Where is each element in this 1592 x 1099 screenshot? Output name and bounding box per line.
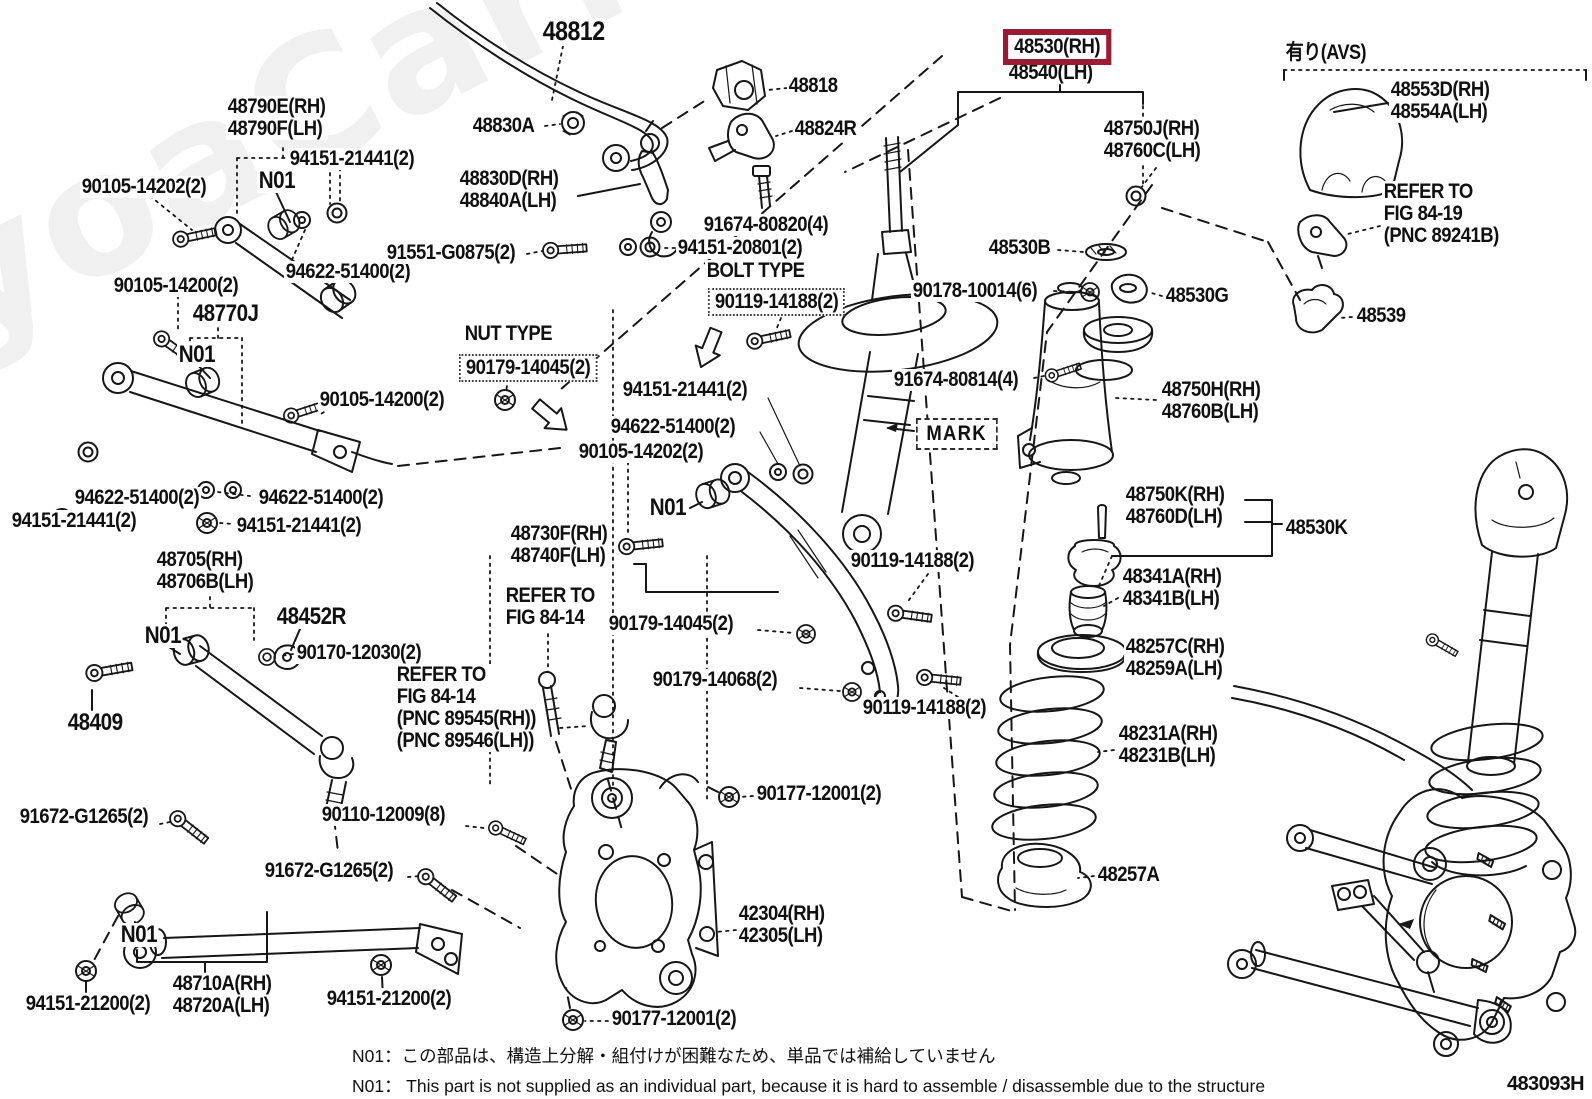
footnote-en: N01： This part is not supplied as an ind… xyxy=(350,1076,1267,1096)
part-48540-lh: 48540(LH) xyxy=(1007,62,1094,84)
part-48553d-48554a: 48553D(RH) 48554A(LH) xyxy=(1389,79,1491,123)
note-n01-a: N01 xyxy=(257,169,297,193)
part-48790e-48790f: 48790E(RH) 48790F(LH) xyxy=(226,96,327,140)
part-48530-rh-selected[interactable]: 48530(RH) xyxy=(1003,29,1111,65)
part-48730f-48740f: 48730F(RH) 48740F(LH) xyxy=(509,523,609,567)
note-n01-c: N01 xyxy=(143,624,183,648)
part-48452r: 48452R xyxy=(275,605,348,629)
part-94151-21441-mid: 94151-21441(2) xyxy=(621,379,749,401)
part-90177-12001-a: 90177-12001(2) xyxy=(755,783,883,805)
part-91674-80820: 91674-80820(4) xyxy=(702,214,830,236)
part-48530g: 48530G xyxy=(1164,285,1230,307)
part-90179-14045-boxed: 90179-14045(2) xyxy=(459,354,597,382)
part-48257a: 48257A xyxy=(1096,864,1161,886)
part-90179-14045-b: 90179-14045(2) xyxy=(607,613,735,635)
part-94151-21441-c: 94151-21441(2) xyxy=(235,515,363,537)
part-94151-21200-a: 94151-21200(2) xyxy=(24,993,152,1015)
part-90119-14188-b: 90119-14188(2) xyxy=(861,697,988,719)
part-90170-12030: 90170-12030(2) xyxy=(295,642,423,664)
note-n01-b: N01 xyxy=(177,343,217,367)
part-48770j: 48770J xyxy=(191,302,260,326)
footnote-jp: N01：この部品は、構造上分解・組付けが困難なため、単品では補給していません xyxy=(350,1046,998,1066)
caption-refer-fig-84-14-b: REFER TO FIG 84-14 (PNC 89545(RH)) (PNC … xyxy=(395,664,538,752)
part-90105-14202-mid: 90105-14202(2) xyxy=(577,441,705,463)
caption-refer-fig-84-19: REFER TO FIG 84-19 (PNC 89241B) xyxy=(1382,181,1501,247)
part-94622-51400-mid: 94622-51400(2) xyxy=(609,416,737,438)
caption-avs: 有り(AVS) xyxy=(1284,42,1368,63)
part-90119-14188-boxed: 90119-14188(2) xyxy=(708,288,845,316)
part-48257c-48259a: 48257C(RH) 48259A(LH) xyxy=(1124,636,1226,680)
part-48231a-48231b: 48231A(RH) 48231B(LH) xyxy=(1117,723,1219,767)
caption-mark: MARK xyxy=(916,418,997,450)
part-48539: 48539 xyxy=(1355,305,1407,327)
diagram-code: 483093H xyxy=(1505,1074,1586,1094)
part-48818: 48818 xyxy=(787,75,839,97)
part-91672-g1265-b: 91672-G1265(2) xyxy=(263,860,395,882)
part-94622-51400-a: 94622-51400(2) xyxy=(284,261,412,283)
part-48530k: 48530K xyxy=(1284,517,1349,539)
part-90177-12001-b: 90177-12001(2) xyxy=(610,1008,738,1030)
parts-diagram-page: ToyoaCarMine.ru xyxy=(0,0,1592,1099)
part-48710a-48720a: 48710A(RH) 48720A(LH) xyxy=(171,973,273,1017)
part-48812: 48812 xyxy=(541,18,606,46)
part-90179-14068: 90179-14068(2) xyxy=(651,669,779,691)
part-94622-51400-c: 94622-51400(2) xyxy=(257,487,385,509)
part-90110-12009: 90110-12009(8) xyxy=(320,804,447,826)
part-90105-14202-a: 90105-14202(2) xyxy=(80,176,208,198)
note-n01-d: N01 xyxy=(119,923,159,947)
part-94151-21200-b: 94151-21200(2) xyxy=(325,988,453,1010)
part-48830d-48840a: 48830D(RH) 48840A(LH) xyxy=(458,168,560,212)
part-94151-21441-b: 94151-21441(2) xyxy=(10,510,138,532)
part-94151-20801: 94151-20801(2) xyxy=(676,237,804,259)
part-48341a-48341b: 48341A(RH) 48341B(LH) xyxy=(1121,566,1223,610)
part-91674-80814: 91674-80814(4) xyxy=(892,369,1020,391)
part-94622-51400-b: 94622-51400(2) xyxy=(73,487,201,509)
caption-refer-fig-84-14-a: REFER TO FIG 84-14 xyxy=(504,585,596,629)
part-94151-21441-a: 94151-21441(2) xyxy=(288,148,416,170)
part-48824r: 48824R xyxy=(793,118,858,140)
part-48530b: 48530B xyxy=(987,237,1052,259)
part-48705-48706b: 48705(RH) 48706B(LH) xyxy=(155,549,255,593)
caption-nut-type: NUT TYPE xyxy=(463,323,554,345)
part-90119-14188-a: 90119-14188(2) xyxy=(849,550,976,572)
part-90178-10014: 90178-10014(6) xyxy=(911,280,1039,302)
part-42304-42305: 42304(RH) 42305(LH) xyxy=(737,903,826,947)
part-48830a: 48830A xyxy=(471,115,536,137)
part-91672-g1265-a: 91672-G1265(2) xyxy=(18,806,150,828)
part-90105-14200-a: 90105-14200(2) xyxy=(112,275,240,297)
note-n01-mid: N01 xyxy=(648,496,688,520)
part-48750h-48760b: 48750H(RH) 48760B(LH) xyxy=(1160,379,1262,423)
part-48409: 48409 xyxy=(66,711,124,735)
part-90105-14200-b: 90105-14200(2) xyxy=(318,389,446,411)
part-48750k-48760d: 48750K(RH) 48760D(LH) xyxy=(1124,484,1226,528)
part-48750j-48760c: 48750J(RH) 48760C(LH) xyxy=(1102,118,1202,162)
part-91551-g0875: 91551-G0875(2) xyxy=(385,242,517,264)
caption-bolt-type: BOLT TYPE xyxy=(705,260,806,282)
